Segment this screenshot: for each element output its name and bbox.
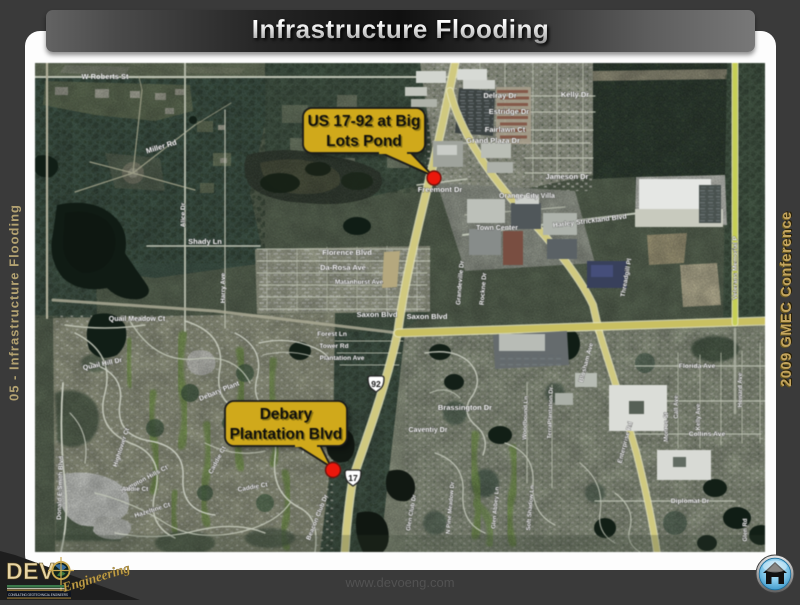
svg-text:Monroe St: Monroe St xyxy=(664,412,670,441)
svg-text:Diplomat Dr: Diplomat Dr xyxy=(671,498,710,505)
svg-text:Lots Pond: Lots Pond xyxy=(326,133,402,150)
svg-text:92: 92 xyxy=(371,379,381,389)
svg-text:Jameson Dr: Jameson Dr xyxy=(546,172,589,181)
svg-text:17: 17 xyxy=(348,473,358,483)
svg-text:Caventiy Dr: Caventiy Dr xyxy=(409,427,448,434)
svg-text:Town Center: Town Center xyxy=(476,225,518,232)
svg-text:Shady Ln: Shady Ln xyxy=(188,237,222,246)
svg-text:Florence Blvd: Florence Blvd xyxy=(322,248,372,257)
svg-text:Brassington Dr: Brassington Dr xyxy=(438,403,492,412)
svg-text:Delray Dr: Delray Dr xyxy=(483,91,516,100)
svg-text:Alice Dr: Alice Dr xyxy=(180,202,187,227)
svg-text:US 17-92 at Big: US 17-92 at Big xyxy=(308,113,421,130)
svg-text:Forest Ln: Forest Ln xyxy=(317,331,347,338)
svg-text:Orange City Villa: Orange City Villa xyxy=(499,193,555,200)
svg-text:Veterans Memorial P: Veterans Memorial P xyxy=(732,236,739,300)
svg-text:Harry Ave: Harry Ave xyxy=(220,273,227,304)
svg-text:Glen Rd: Glen Rd xyxy=(743,518,749,541)
svg-text:Saxon Blvd: Saxon Blvd xyxy=(407,312,448,321)
svg-text:Fairlawn Ct: Fairlawn Ct xyxy=(485,125,526,134)
svg-text:CONSULTING GEOTECHNICAL ENGINE: CONSULTING GEOTECHNICAL ENGINEERS xyxy=(8,593,68,597)
svg-text:Kelly Dr: Kelly Dr xyxy=(561,90,589,99)
svg-text:Da-Rosa Ave: Da-Rosa Ave xyxy=(320,263,366,272)
svg-text:Estridge Dr: Estridge Dr xyxy=(489,107,530,116)
svg-text:Plantation Ave: Plantation Ave xyxy=(320,355,365,362)
svg-text:Addie Ct: Addie Ct xyxy=(122,486,150,493)
svg-text:Call Ave: Call Ave xyxy=(674,395,680,419)
svg-text:Florida Ave: Florida Ave xyxy=(679,363,716,370)
svg-text:Quail Meadow Ct: Quail Meadow Ct xyxy=(109,316,166,323)
svg-text:Collins Ave: Collins Ave xyxy=(689,431,726,438)
svg-text:DEV: DEV xyxy=(6,558,55,584)
svg-text:Grand Plaza Dr: Grand Plaza Dr xyxy=(466,136,520,145)
svg-text:W Roberts St: W Roberts St xyxy=(81,72,129,81)
svg-text:Debary: Debary xyxy=(260,406,313,423)
svg-text:Matanhurst Ave: Matanhurst Ave xyxy=(335,279,384,286)
svg-text:Saxon Blvd: Saxon Blvd xyxy=(357,310,398,319)
svg-text:Kelly Ave: Kelly Ave xyxy=(696,403,702,430)
svg-text:Plantation Blvd: Plantation Blvd xyxy=(230,426,343,443)
svg-text:Howard Ave: Howard Ave xyxy=(738,372,744,407)
svg-text:Tower Rd: Tower Rd xyxy=(319,343,348,350)
svg-text:Freemont Dr: Freemont Dr xyxy=(418,185,463,194)
